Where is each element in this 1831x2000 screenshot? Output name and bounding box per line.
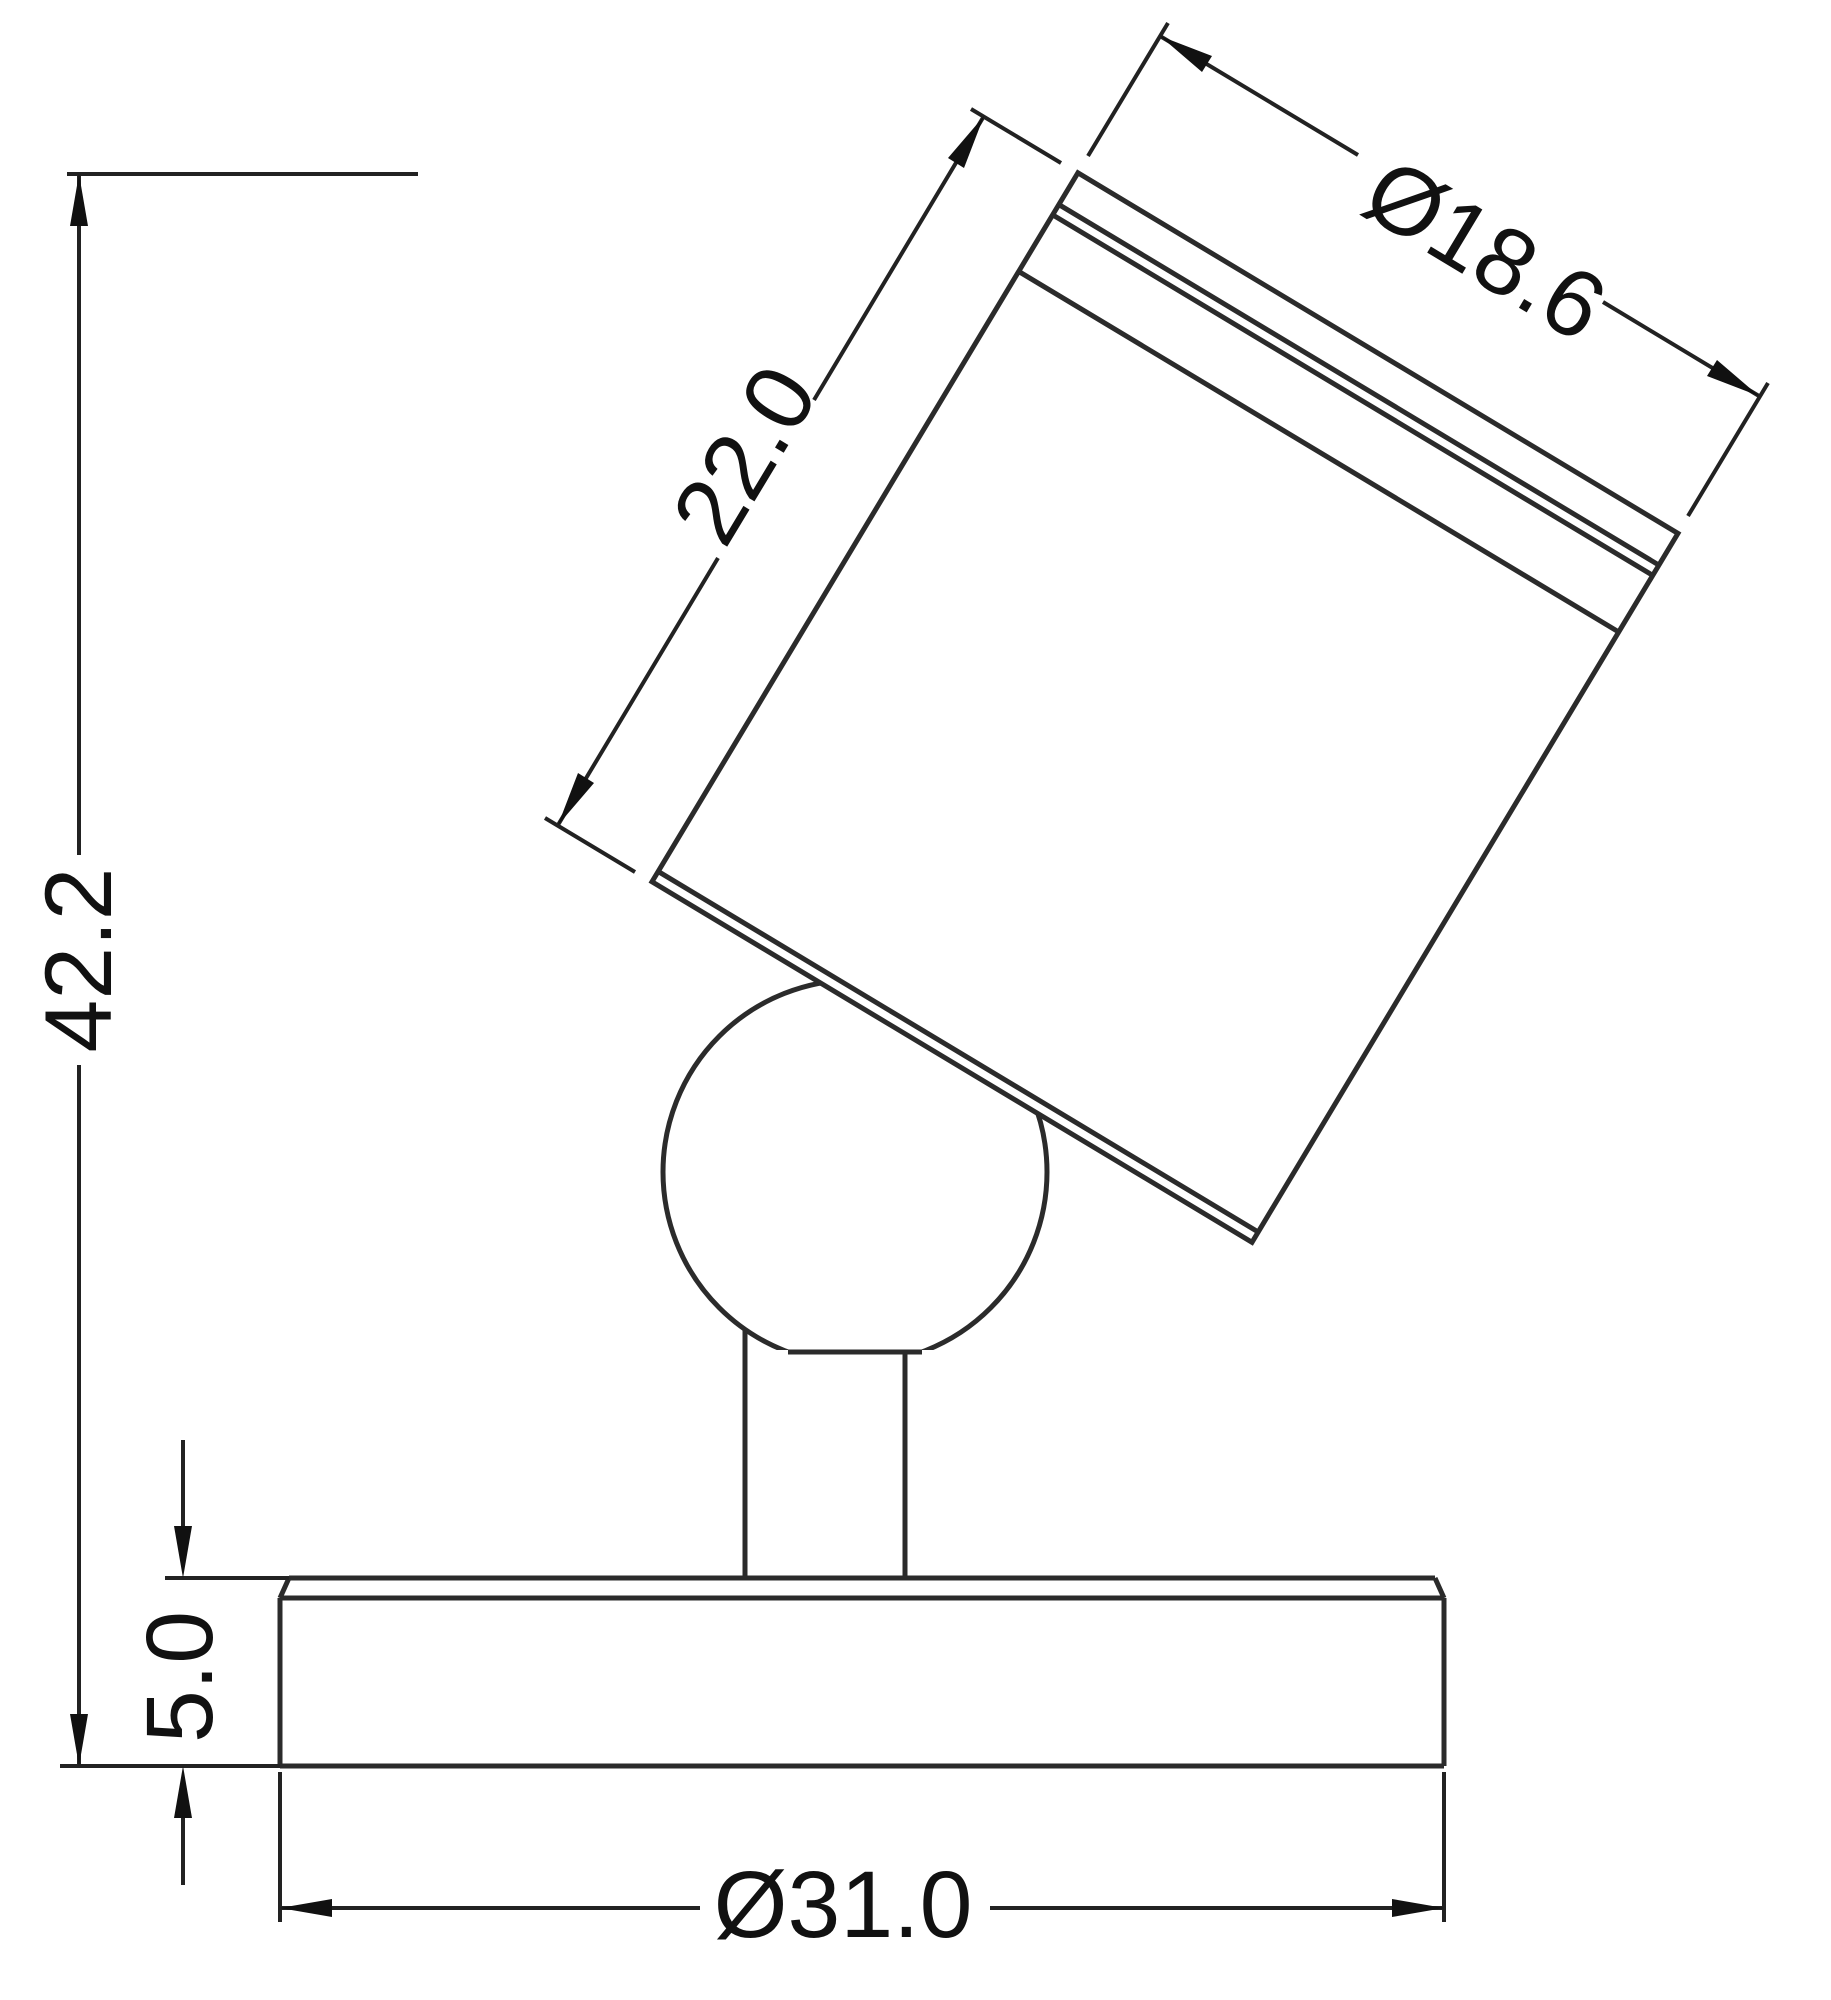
ball-joint-bottom-trim: [750, 1350, 960, 1382]
base-left-chamfer: [280, 1578, 289, 1598]
head-diameter-label: Ø18.6: [1347, 138, 1623, 362]
head-length-label: 22.0: [652, 348, 838, 561]
base-diameter-label: Ø31.0: [714, 1852, 973, 1958]
arrowhead-up-icon: [174, 1766, 192, 1818]
head-diameter-extension-line-right: [1688, 383, 1768, 516]
base-thickness-label: 5.0: [127, 1611, 233, 1743]
base: [280, 1578, 1444, 1766]
arrowhead-down-icon: [70, 1714, 88, 1766]
spotlight-fixture: [280, 173, 1678, 1766]
arrowhead-right-icon: [1392, 1899, 1444, 1917]
dimension-overall-height: 42.2: [26, 174, 418, 1766]
technical-drawing-page: 42.2 5.0 Ø31.0: [0, 0, 1831, 2000]
arrowhead-down-right-icon: [1707, 360, 1759, 396]
technical-drawing-canvas: 42.2 5.0 Ø31.0: [0, 0, 1831, 2000]
base-right-chamfer: [1435, 1578, 1444, 1598]
dimension-base-thickness: 5.0: [127, 1440, 289, 1885]
arrowhead-up-right-icon: [948, 116, 984, 168]
overall-height-label: 42.2: [26, 868, 132, 1053]
arrowhead-left-icon: [280, 1899, 332, 1917]
head-length-extension-line-bottom: [545, 818, 635, 872]
arrowhead-down-icon: [174, 1526, 192, 1578]
head-diameter-extension-line-left: [1088, 23, 1168, 156]
arrowhead-up-left-icon: [1160, 36, 1212, 72]
arrowhead-up-icon: [70, 174, 88, 226]
dimension-base-diameter: Ø31.0: [280, 1772, 1444, 1958]
arrowhead-down-left-icon: [558, 773, 594, 825]
